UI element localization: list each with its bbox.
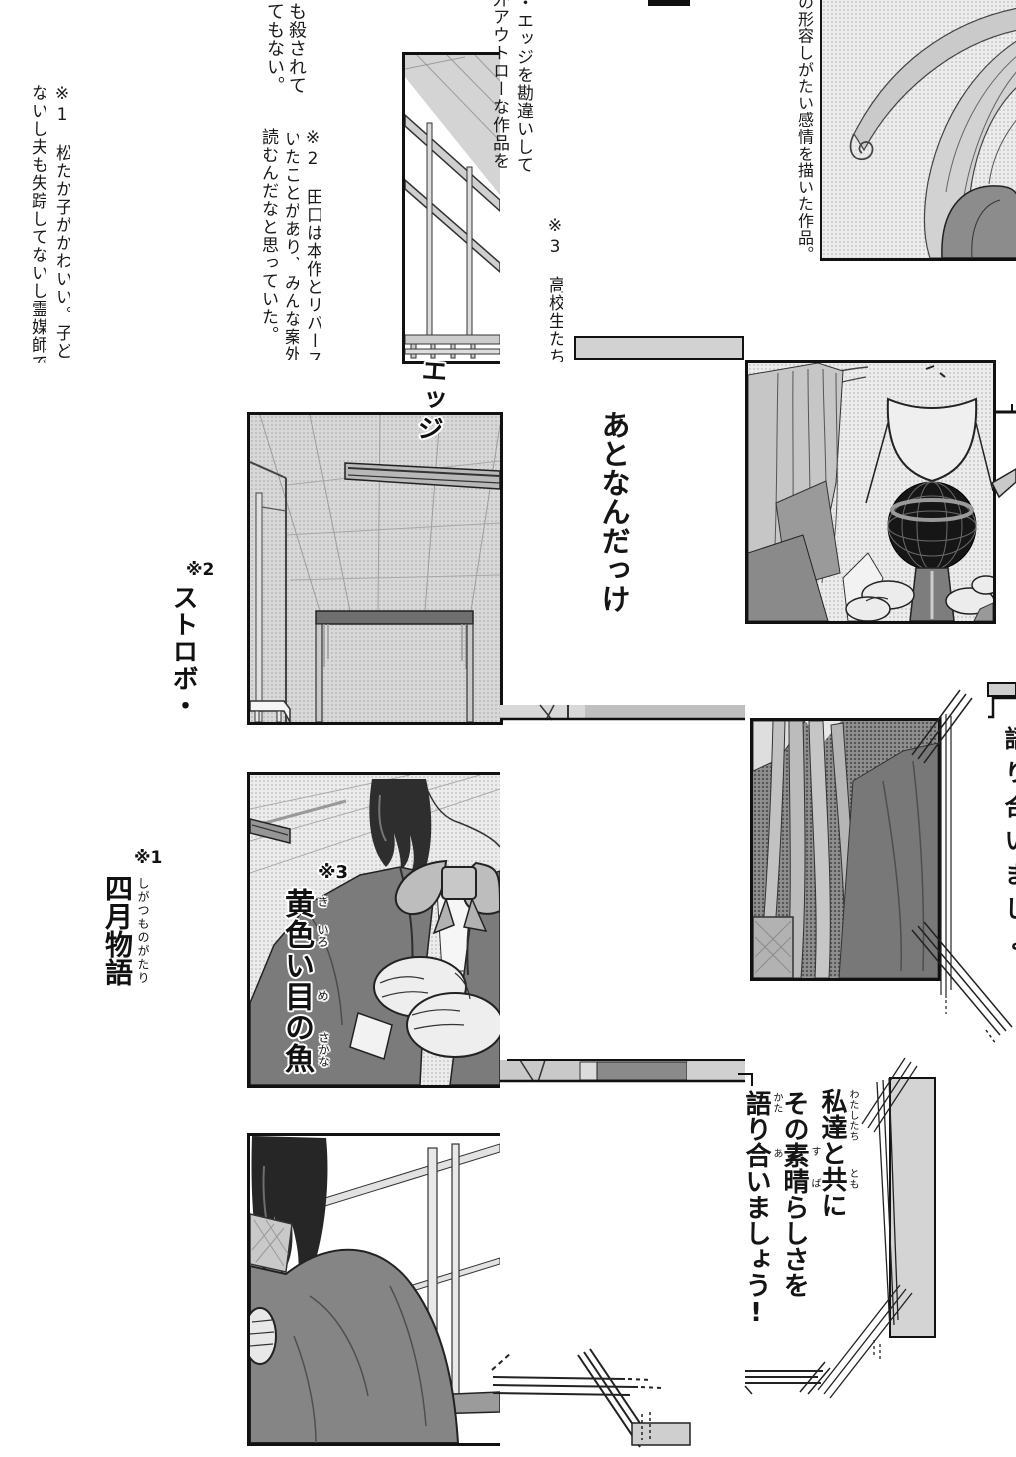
panel-shoulder-hair-closeup	[750, 718, 941, 981]
clipped-sentence-col-1: も殺されて	[287, 2, 305, 95]
speech-edge-clipped: 語り合いましょ	[1002, 726, 1016, 964]
bottom-gray-rect-fragment	[632, 1423, 690, 1445]
invite-furigana-ba: ば	[809, 1178, 819, 1189]
top-bar-fragment	[648, 0, 690, 6]
speech-recall: あとなんだっけ	[599, 410, 628, 613]
april-story-furigana: しがつものがたり	[137, 877, 149, 985]
footnote3-col-1: ※3 高校生たちの	[546, 216, 563, 362]
yellow-fish-mark: ※3	[318, 864, 348, 882]
strobe-edge-mark: ※2	[186, 562, 214, 579]
yellow-fish-furigana-me: め	[317, 990, 328, 1002]
invite-furigana-su: す	[809, 1146, 819, 1157]
strobe-edge-title-overlay: エッジ	[414, 356, 446, 445]
footnote1-col-2: ないし夫も失踪してないし霊媒師で	[29, 84, 46, 363]
footnote2-col-1: ※2 田口は本作とリバース	[304, 128, 321, 360]
strobe-edge-title: ストロボ・	[170, 584, 196, 719]
panel-hair-closeup	[820, 0, 1016, 261]
clipped-sentence-col-2: てもない。	[265, 2, 283, 95]
bottom-gray-rect-dashes	[642, 1412, 650, 1440]
invite-furigana-tomo: とも	[847, 1168, 857, 1190]
bottom-right-speedlines	[745, 1362, 830, 1394]
shoulder-hair-art	[753, 721, 938, 978]
microphone-chin-art	[748, 363, 993, 621]
yellow-fish-furigana-ki: き	[317, 896, 328, 908]
classroom-window-art	[405, 55, 500, 361]
panel-sliver-bottom	[500, 1060, 752, 1086]
footnote1-col-1: ※1 松たか子がかわいい。子ども	[53, 84, 70, 360]
invite-furigana-kata: かた	[771, 1092, 781, 1114]
yellow-fish-furigana-sakana: さかな	[318, 1032, 329, 1068]
yellow-fish-furigana-iro: いろ	[317, 924, 328, 948]
invite-furigana-a: あ	[771, 1148, 781, 1159]
panel-classroom-window-corner	[402, 52, 500, 364]
panel-classroom-ceiling	[247, 412, 503, 725]
gray-strip-fragment	[575, 337, 743, 359]
person-from-behind-art	[250, 1136, 500, 1443]
panel-microphone-chin	[745, 360, 996, 624]
work-note-col: の形容しがたい感情を描いた作品。	[796, 0, 812, 263]
speech-invite-col-1: 私達と共に	[819, 1088, 845, 1218]
right-corner-fragment	[995, 404, 1016, 412]
manga-page: { "page": {"bg": "#ffffff", "ink": "#1a1…	[0, 0, 1016, 1457]
april-story-mark: ※1	[134, 850, 162, 867]
footnote2-col-3: 読むんだなと思っていた。	[259, 128, 276, 344]
april-story-title: 四月物語	[103, 874, 131, 986]
speech-invite-col-2: その素晴らしさを	[781, 1090, 807, 1298]
footnote3-col-2: ・エッジを勘違いして	[514, 0, 531, 174]
panel-sliver-top	[500, 705, 745, 720]
panel-person-from-behind	[247, 1133, 500, 1446]
classroom-ceiling-art	[250, 415, 500, 722]
hair-closeup-art	[822, 0, 1016, 258]
invite-furigana-watashitachi: わたしたち	[847, 1089, 857, 1142]
footnote3-col-3: 外アウトローな作品を	[490, 0, 507, 170]
yellow-fish-title: 黄色い目の魚	[281, 888, 311, 1074]
right-box-fragment	[988, 683, 1016, 717]
bottom-left-speedlines	[492, 1349, 662, 1447]
footnote2-col-2: いたことがあり、みんな案外	[282, 130, 299, 360]
speech-invite-col-3: 語り合いましょう!	[743, 1090, 769, 1328]
